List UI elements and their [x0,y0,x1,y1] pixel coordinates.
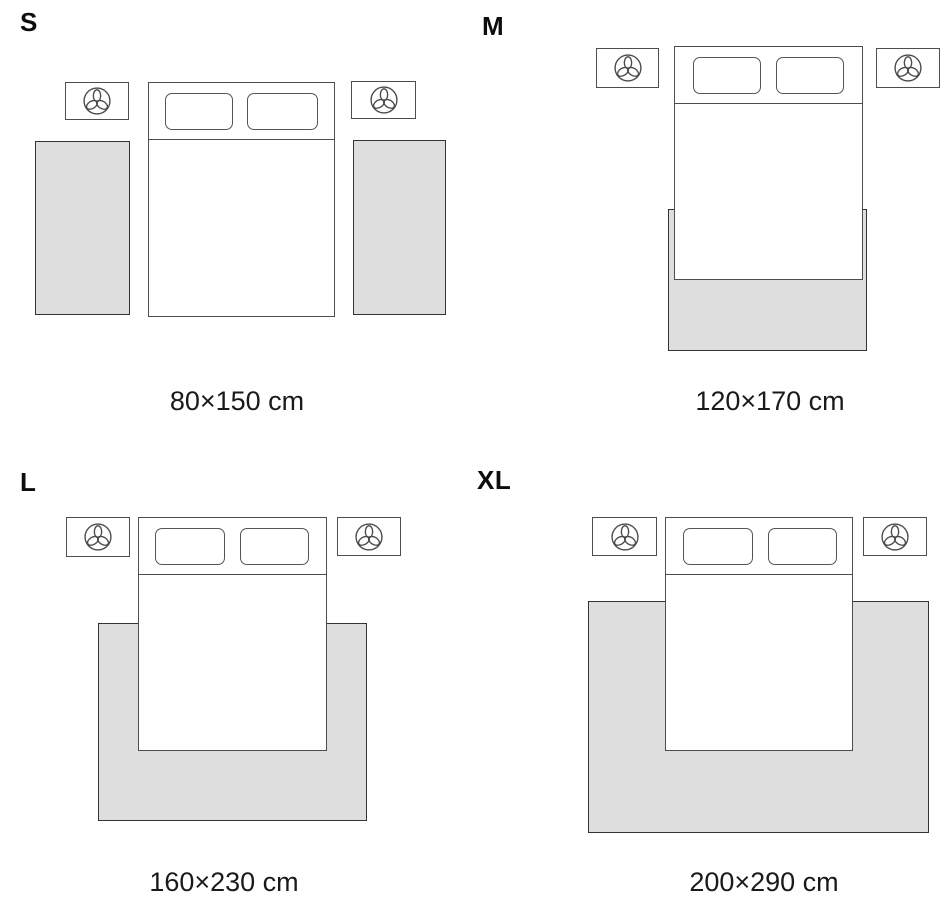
nightstand-left [65,82,129,120]
rug-left-runner [35,141,130,315]
rug-right-runner [353,140,446,315]
plant-icon [608,520,642,554]
pillow-left [155,528,225,565]
plant-icon [81,520,115,554]
pillow-left [693,57,761,94]
size-caption-m: 120×170 cm [595,386,945,417]
nightstand-left [596,48,659,88]
nightstand-right [337,517,401,556]
pillow-left [165,93,233,130]
plant-icon [878,520,912,554]
size-caption-xl: 200×290 cm [564,867,950,898]
bed-top-view [674,46,863,280]
bed-top-view [665,517,853,751]
plant-icon [80,84,114,118]
size-label-xl: XL [477,467,511,493]
nightstand-right [876,48,940,88]
nightstand-left [66,517,130,557]
plant-icon [891,51,925,85]
plant-icon [352,520,386,554]
pillow-right [247,93,318,130]
bed-top-view [138,517,327,751]
rug-size-guide: S [0,0,950,900]
pillow-left [683,528,753,565]
bed-headboard-area [149,83,334,140]
bed-top-view [148,82,335,317]
nightstand-left [592,517,657,556]
bed-headboard-area [666,518,852,575]
size-caption-l: 160×230 cm [24,867,424,898]
bed-headboard-area [675,47,862,104]
plant-icon [611,51,645,85]
nightstand-right [863,517,927,556]
plant-icon [367,83,401,117]
pillow-right [776,57,844,94]
pillow-right [240,528,309,565]
nightstand-right [351,81,416,119]
pillow-right [768,528,837,565]
bed-headboard-area [139,518,326,575]
size-caption-s: 80×150 cm [37,386,437,417]
